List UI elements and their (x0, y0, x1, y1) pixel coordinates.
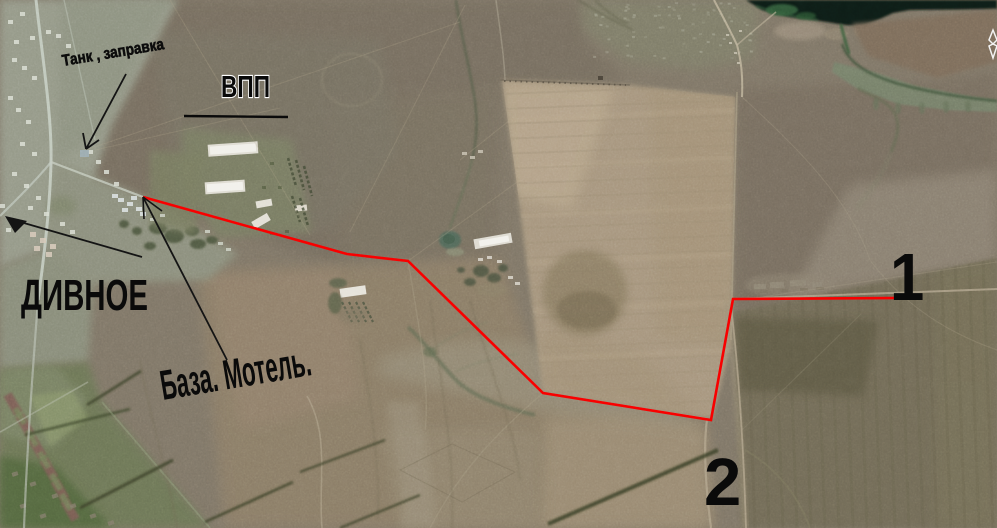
svg-text:ВПП: ВПП (221, 69, 270, 104)
svg-text:2: 2 (704, 445, 741, 520)
svg-text:1: 1 (890, 240, 924, 315)
svg-text:ДИВНОЕ: ДИВНОЕ (21, 271, 148, 320)
